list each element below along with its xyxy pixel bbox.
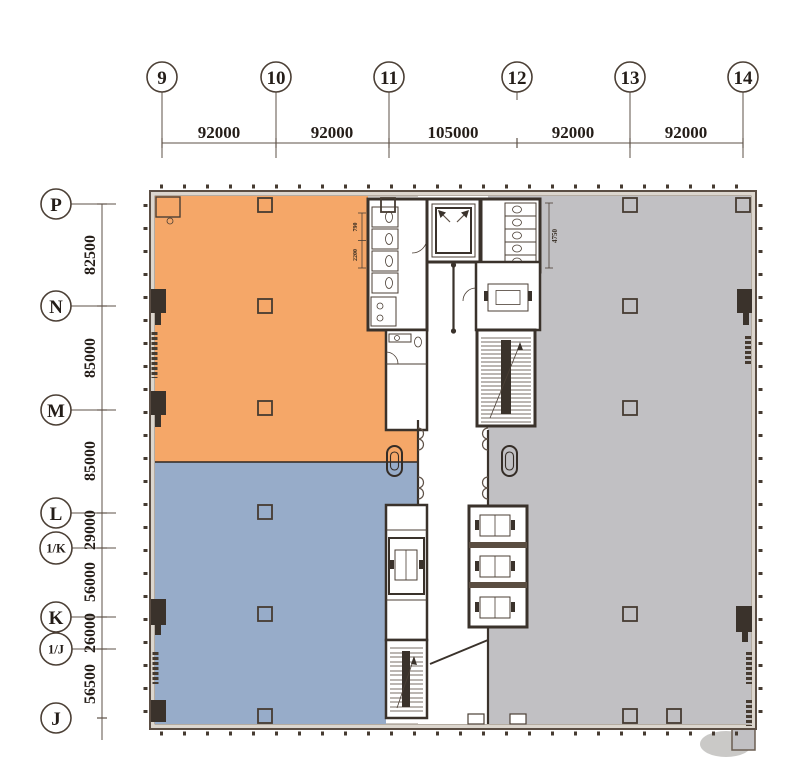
row-dim-label: 56000 [82,562,99,602]
grid-bubble-label: 9 [157,68,167,89]
column-dim-label: 92000 [665,123,708,142]
stair-stringer [501,340,511,414]
column-grid-annotations: 9 10 11 12 13 14 92000 92000 105000 9200… [147,62,758,158]
elevator-rail [475,561,479,571]
elevator-rail [419,560,423,569]
grid-bubble-label: 10 [267,68,286,89]
equipment-guide [484,291,488,301]
wall-pier [151,391,166,415]
interior-dim-label: 790 [353,223,359,232]
elevator-rail [511,602,515,612]
wall-pier [151,289,166,313]
grid-bubble-label: 1/J [48,643,64,657]
column-dim-label: 92000 [198,123,241,142]
grid-bubble-label: K [49,608,64,629]
row-dim-label: 82500 [82,235,99,275]
rail-knob [451,328,456,333]
row-dim-label: 26000 [82,613,99,653]
grid-bubble-label: L [50,504,63,525]
shaft-divider [469,582,527,588]
wall-pier-stem [742,632,748,642]
interior-dim-label: 4750 [551,229,559,244]
elevator-rail [475,520,479,530]
wall-pier-stem [155,625,161,635]
column-base [510,714,526,724]
column-dim-label: 92000 [552,123,595,142]
elevator-rail [390,560,394,569]
grid-bubble-label: M [47,401,65,422]
grid-bubble-label: N [49,297,63,318]
grid-bubble-label: P [50,195,62,216]
row-dim-label: 85000 [82,441,99,481]
grid-bubble-label: 1/K [46,542,66,556]
wall-pier [151,700,166,722]
row-dim-label: 85000 [82,338,99,378]
floor-plan-page: 9 10 11 12 13 14 92000 92000 105000 9200… [0,0,800,771]
row-grid-annotations: P N M L 1/K K 1/J J 82500 85000 85000 29… [40,189,116,740]
grid-bubble-label: J [51,709,61,730]
wall-pier-stem [743,313,749,325]
zone-southwest-blue [155,462,418,724]
wall-pier-stem [155,313,161,325]
wall-pier [151,599,166,625]
core-top [368,199,540,334]
wall-pier [737,289,752,313]
elevator-rail [511,520,515,530]
column-dim-label: 92000 [311,123,354,142]
elevator-rail [475,602,479,612]
grid-bubble-label: 13 [621,68,640,89]
wall-pier [736,606,752,632]
elevator-rail [511,561,515,571]
rail-knob [451,262,456,267]
shaft-divider [469,542,527,548]
wall-pier-stem [155,415,161,427]
elevator-shaft [389,538,424,594]
grid-bubble-label: 14 [734,68,754,89]
column-base [468,714,484,724]
stair-stringer [402,651,410,707]
column-dim-label: 105000 [428,123,479,142]
row-dim-label: 56500 [82,664,99,704]
grid-bubble-label: 12 [508,68,527,89]
equipment-guide [528,291,532,301]
grid-bubble-label: 11 [380,68,398,89]
row-dim-label: 29000 [82,510,99,550]
interior-dim-label: 2200 [353,249,359,261]
floor-plan-drawing: 9 10 11 12 13 14 92000 92000 105000 9200… [0,0,800,771]
